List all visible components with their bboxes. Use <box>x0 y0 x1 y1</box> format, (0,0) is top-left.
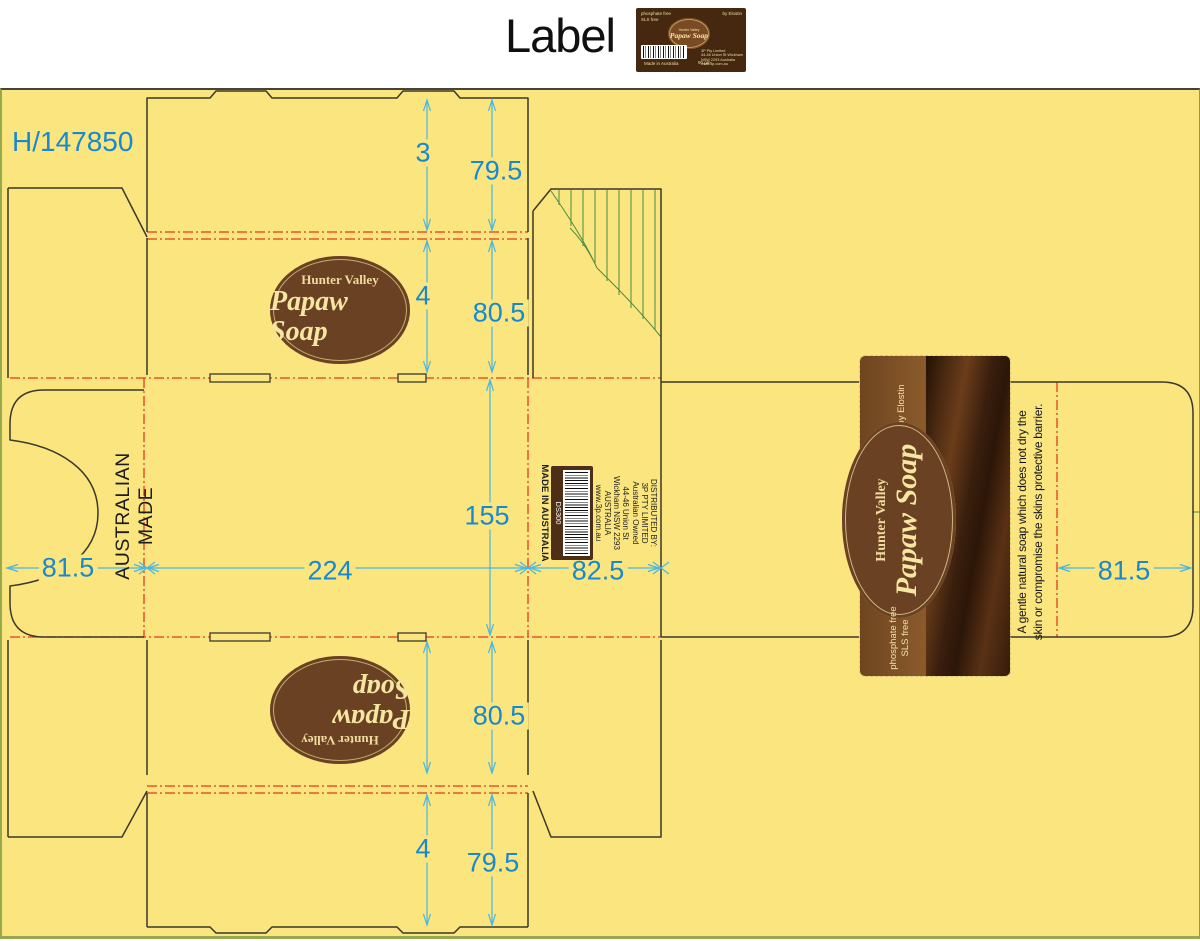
dim-crease-gap-bottom: 4 <box>412 836 433 863</box>
distributor-line: 3P PTY LIMITED <box>640 424 649 602</box>
dim-top-flap: 79.5 <box>467 158 526 185</box>
drawing-reference: H/147850 <box>12 126 133 158</box>
brand-name-line: Papaw Soap <box>270 673 410 733</box>
made-in-australia-text: MADE IN AUSTRALIA <box>538 424 550 602</box>
brand-top-line: Hunter Valley <box>874 478 890 561</box>
mini-sls-free: SLS free <box>641 17 671 23</box>
big-label-oval-wrap: Hunter Valley Papaw Soap <box>842 422 956 618</box>
barcode-bars <box>563 470 590 556</box>
mini-phosphate-free: phosphate free <box>641 11 671 17</box>
dim-tab-height: 3 <box>412 140 433 167</box>
distributor-line: www.3p.com.au <box>594 424 603 602</box>
distributor-line: Australian Owned <box>630 424 639 602</box>
brand-name-line: Papaw Soap <box>890 444 924 597</box>
sls-free-text: SLS free <box>900 606 912 670</box>
dim-crease-gap-top: 4 <box>412 283 433 310</box>
mini-address: 3P Pty Limited 44-46 Union St Wickham NS… <box>701 49 743 67</box>
barcode-bars <box>643 46 685 58</box>
tagline-line2: skin or compromise the skins protective … <box>1030 396 1046 648</box>
dim-front-panel: 224 <box>304 558 355 585</box>
big-brand-oval: Hunter Valley Papaw Soap <box>842 422 956 618</box>
dieline-page: Label phosphate free SLS free by Elostin… <box>0 0 1200 941</box>
mini-made-in: Made in Australia <box>644 61 679 66</box>
tagline-line1: A gentle natural soap which does not dry… <box>1014 396 1030 648</box>
dim-bottom-flap: 79.5 <box>464 850 523 877</box>
distributor-line: AUSTRALIA <box>603 424 612 602</box>
distributor-line: Wickham NSW 2293 <box>612 424 621 602</box>
barcode-code: DS300 <box>554 470 563 556</box>
mini-label-claims: phosphate free SLS free <box>641 11 671 22</box>
dim-lower-panel: 80.5 <box>470 703 529 730</box>
dim-left-tuck: 81.5 <box>39 555 98 582</box>
distributor-line: 44-46 Union St <box>621 424 630 602</box>
dim-body-depth: 155 <box>461 503 512 530</box>
barcode-block: DS300 <box>551 466 593 560</box>
mini-brand-name: Papaw Soap <box>670 32 708 40</box>
brand-top-line: Hunter Valley <box>301 733 378 747</box>
label-tagline: A gentle natural soap which does not dry… <box>1014 396 1048 648</box>
brand-oval-top: Hunter Valley Papaw Soap <box>270 256 410 364</box>
brand-top-line: Hunter Valley <box>301 273 378 287</box>
dim-right-tuck: 81.5 <box>1095 558 1154 585</box>
mini-barcode <box>641 45 687 59</box>
mini-label-preview: phosphate free SLS free by Elostin Hunte… <box>636 8 746 72</box>
page-title: Label <box>505 8 615 63</box>
mini-address-line: www.3p.com.au <box>701 62 743 67</box>
brand-name-line: Papaw Soap <box>270 287 410 347</box>
dim-upper-panel: 80.5 <box>470 300 529 327</box>
brand-oval-bottom: Hunter Valley Papaw Soap <box>270 656 410 764</box>
australian-made-text: AUSTRALIAN MADE <box>112 428 136 604</box>
big-label-claims: phosphate free SLS free <box>888 606 916 670</box>
phosphate-free-text: phosphate free <box>888 606 900 670</box>
distributor-panel: DISTRIBUTED BY: 3P PTY LIMITED Australia… <box>538 424 658 602</box>
mini-byline: by Elostin <box>722 11 742 16</box>
distributor-line: DISTRIBUTED BY: <box>649 424 658 602</box>
